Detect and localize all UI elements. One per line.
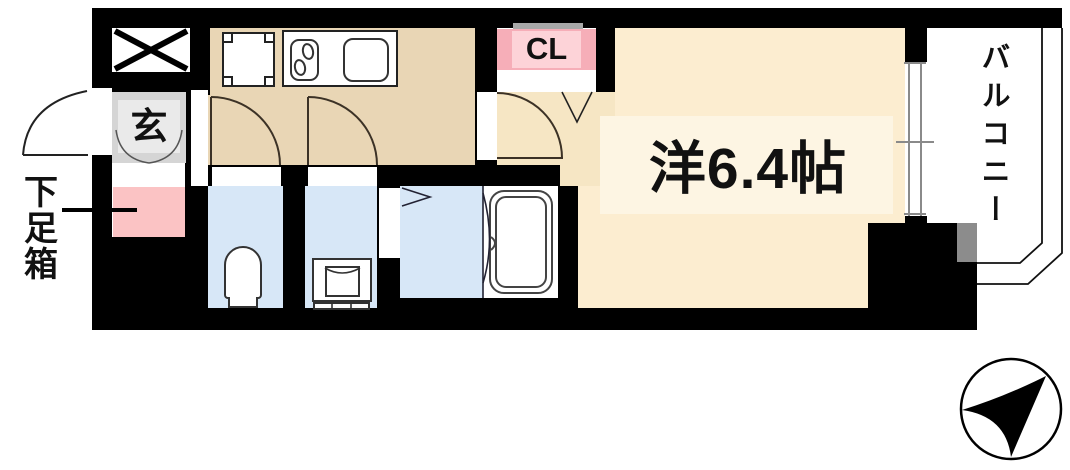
closet-opening [510,70,590,91]
bathroom-door-opening [379,188,400,258]
elevator-shaft [112,28,190,72]
balcony-window-glass-line [920,62,922,216]
shoebox-top-opening [113,165,185,186]
entrance-label: 玄 [112,92,186,154]
toilet-icon [224,246,262,299]
washroom-door-opening [308,167,377,186]
shoebox [113,187,185,237]
shoebox-label: 下足箱 [16,174,60,298]
balcony-window-cap [904,213,926,215]
washing-machine-base [313,302,370,310]
balcony-window-glass-line [908,62,910,216]
toilet-base [228,297,258,308]
bathroom-floor [400,186,483,298]
wall-window-top-block [905,28,927,62]
corridor-step-strip [191,90,208,186]
refrigerator-corner-mark [222,32,233,43]
kitchen-hall-opening [477,92,497,160]
wall-bath-right [558,186,578,308]
hallway-floor [497,92,615,167]
closet-label: CL [497,28,596,70]
wall-cl-right [596,28,615,92]
compass-icon [961,359,1061,459]
wall-ev-right [190,8,210,95]
kitchen-sink-icon [343,38,389,82]
wall-bottom [92,308,977,330]
entrance-door-opening [70,88,112,155]
balcony-window-cap [904,62,926,64]
balcony-window-tick [896,141,934,143]
washing-machine-icon [325,266,360,297]
refrigerator-corner-mark [264,76,275,87]
balcony-label: バルコニー [972,42,1014,262]
bathtub-inner [495,196,547,288]
main-room-label: 洋6.4帖 [608,108,888,220]
refrigerator-corner-mark [222,76,233,87]
floor-plan: 玄 下足箱 CL 洋6.4帖 バルコニー [0,0,1070,470]
refrigerator-corner-mark [264,32,275,43]
shoebox-pointer-line [62,208,137,212]
toilet-door-opening [212,167,281,186]
